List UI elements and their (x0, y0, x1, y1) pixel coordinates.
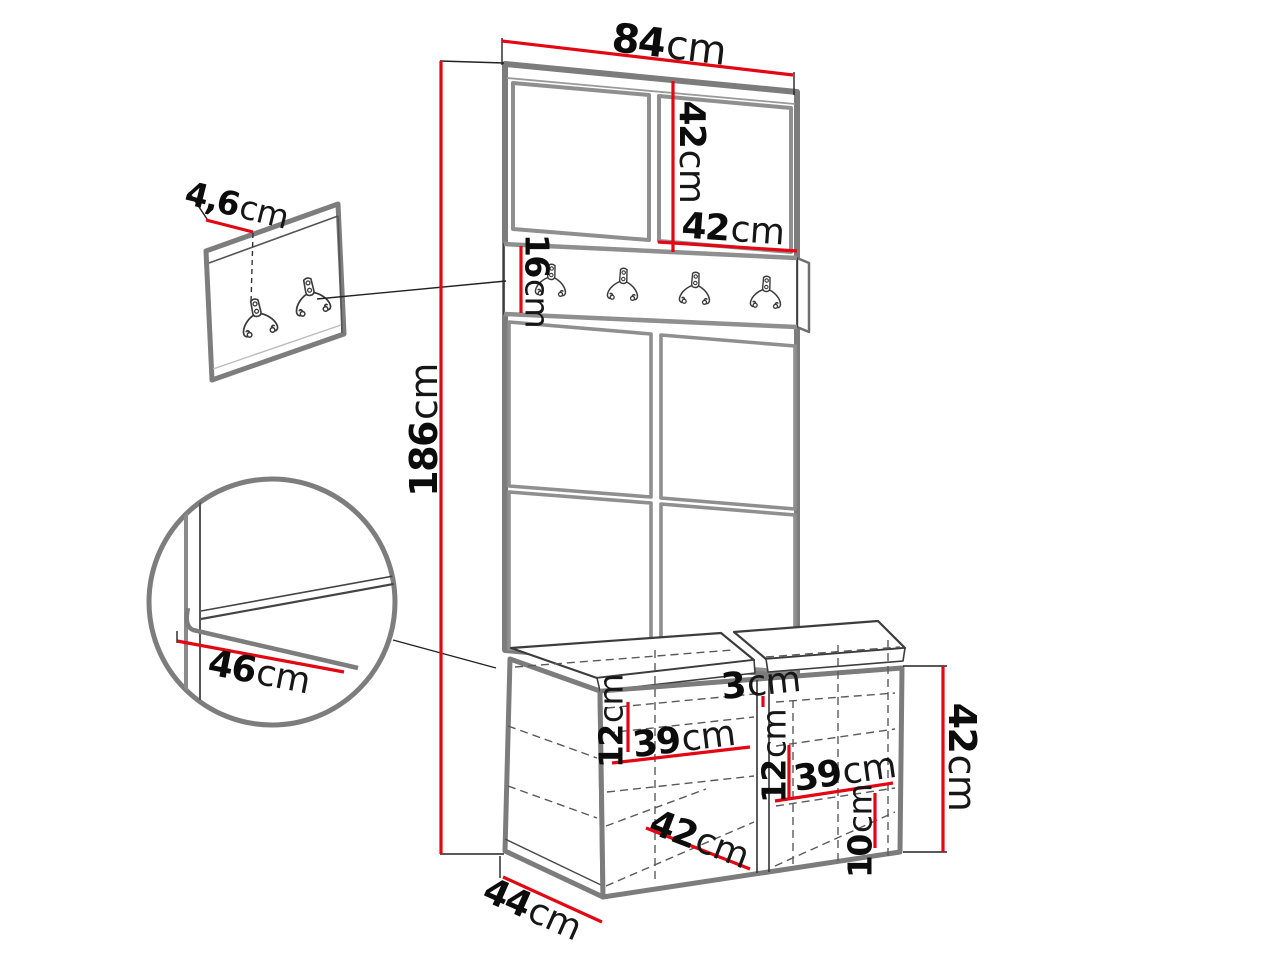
top-door-left (513, 83, 649, 240)
dim-line-wall-panel-depth (206, 220, 253, 232)
bench (505, 621, 905, 897)
upholstered-panel (509, 322, 651, 497)
main-unit (504, 64, 809, 676)
leader-line-circle-to-bench (393, 640, 496, 668)
bench-front-face (600, 668, 902, 897)
top-door-right (659, 96, 791, 252)
furniture-dimension-diagram: 84cm42cm42cm16cm186cm4,6cm46cm12cm39cm3c… (0, 0, 1280, 960)
detail-circle (149, 478, 399, 725)
leader-line-wall-panel-to-rail (317, 281, 506, 299)
bench-side-face (505, 659, 603, 897)
diagram-svg (0, 0, 1280, 960)
wall-hook-panel (206, 204, 344, 380)
upholstered-panel (509, 492, 651, 658)
upholstered-panel (661, 335, 795, 509)
